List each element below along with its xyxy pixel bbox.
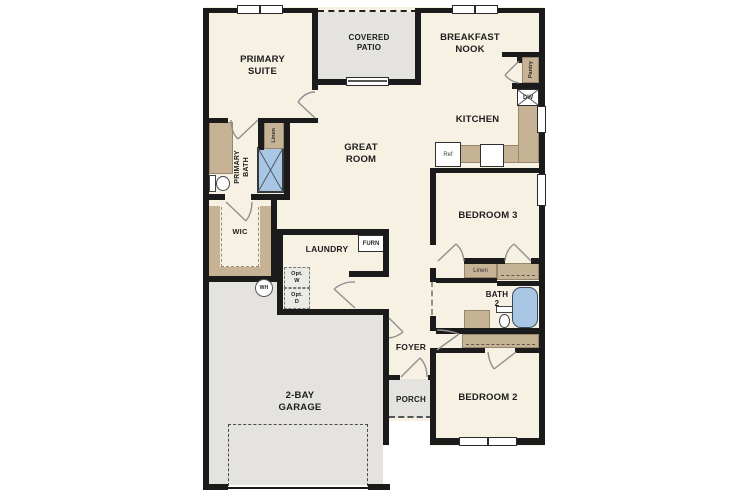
bath2-toilet-bowl xyxy=(499,314,510,328)
room-label-bath-2: BATH 2 xyxy=(480,288,514,310)
garage-door-dashed xyxy=(228,424,368,486)
wall-segment xyxy=(436,438,459,445)
wall-segment xyxy=(312,79,347,85)
window xyxy=(237,5,260,14)
dishwasher-label: DW xyxy=(522,95,534,101)
wall-segment xyxy=(464,258,505,264)
refrigerator: Ref xyxy=(435,142,461,167)
wall-segment xyxy=(389,375,400,380)
primary-vanity xyxy=(209,122,233,174)
furnace: FURN xyxy=(358,235,384,252)
window xyxy=(537,174,546,206)
wall-segment xyxy=(531,258,539,264)
pantry-label: Pantry xyxy=(528,61,534,78)
room-label-primary-suite: PRIMARY SUITE xyxy=(210,50,315,82)
exterior-mask xyxy=(389,421,430,500)
hall-linen-closet: Linen xyxy=(464,263,497,278)
patio-edge-dashed xyxy=(318,10,417,13)
bath2-vanity xyxy=(464,310,490,329)
porch-edge-dashed xyxy=(389,416,432,419)
wall-segment xyxy=(421,8,452,13)
wall-segment xyxy=(203,8,237,13)
wall-segment xyxy=(277,229,384,235)
opt-washer: Opt. W xyxy=(284,267,310,288)
wall-segment xyxy=(388,79,421,85)
bedroom2-closet-shelf xyxy=(462,334,539,348)
room-label-garage: 2-BAY GARAGE xyxy=(250,388,350,416)
floor-plan: Linen FURN Opt. W Opt. D WH Ref DW Pantr… xyxy=(0,0,750,500)
wall-segment xyxy=(349,271,389,277)
room-label-primary-bath: PRIMARY BATH xyxy=(231,139,255,195)
primary-shower xyxy=(257,147,284,193)
primary-toilet-bowl xyxy=(216,176,230,191)
opt-dryer: Opt. D xyxy=(284,288,310,309)
wall-segment xyxy=(203,8,209,490)
wall-segment xyxy=(228,487,368,489)
stove xyxy=(480,144,504,167)
room-label-great-room: GREAT ROOM xyxy=(325,140,397,168)
room-label-breakfast-nook: BREAKFAST NOOK xyxy=(420,30,520,58)
wall-segment xyxy=(517,438,545,445)
patio-slider-door xyxy=(348,80,387,82)
refrigerator-label: Ref xyxy=(443,152,452,158)
bath2-tub xyxy=(512,287,538,328)
furnace-label: FURN xyxy=(363,241,380,247)
wall-segment xyxy=(497,8,545,13)
room-label-bedroom-3: BEDROOM 3 xyxy=(438,209,538,223)
wall-segment xyxy=(258,120,264,150)
wall-segment xyxy=(203,118,228,123)
window xyxy=(488,437,517,446)
wall-segment xyxy=(436,278,497,283)
wall-segment xyxy=(203,194,225,200)
pantry-closet: Pantry xyxy=(522,57,539,83)
wall-segment xyxy=(436,348,485,353)
primary-linen-label: Linen xyxy=(271,128,277,143)
wall-segment xyxy=(203,484,228,490)
wall-segment xyxy=(383,315,389,445)
bedroom3-closet-shelf xyxy=(497,263,539,280)
wall-segment xyxy=(515,348,539,353)
wall-segment xyxy=(497,281,539,286)
wall-segment xyxy=(436,328,539,334)
kitchen-counter-right xyxy=(518,103,539,163)
room-label-kitchen: KITCHEN xyxy=(445,113,510,126)
primary-toilet-tank xyxy=(209,175,216,192)
window xyxy=(452,5,475,14)
wall-segment xyxy=(277,229,283,315)
window xyxy=(459,437,488,446)
primary-linen-closet: Linen xyxy=(264,121,284,149)
wall-segment xyxy=(539,8,545,445)
room-label-bedroom-2: BEDROOM 2 xyxy=(438,391,538,405)
wall-segment xyxy=(277,309,389,315)
wall-segment xyxy=(368,484,390,490)
room-label-porch: PORCH xyxy=(387,394,435,406)
wall-segment xyxy=(512,83,539,89)
window xyxy=(475,5,498,14)
wall-segment xyxy=(430,168,436,245)
water-heater: WH xyxy=(255,279,273,297)
room-label-laundry: LAUNDRY xyxy=(299,243,355,255)
window xyxy=(537,106,546,133)
room-label-foyer: FOYER xyxy=(387,341,435,354)
window xyxy=(260,5,283,14)
wall-segment xyxy=(284,118,290,200)
dishwasher: DW xyxy=(517,89,539,106)
wall-segment xyxy=(428,375,436,380)
room-label-covered-patio: COVERED PATIO xyxy=(330,30,408,56)
wall-segment xyxy=(383,229,389,277)
attic-access-dashed xyxy=(431,281,434,315)
wall-segment xyxy=(430,168,545,173)
room-label-wic: WIC xyxy=(215,226,265,238)
hall-linen-label: Linen xyxy=(473,268,488,274)
